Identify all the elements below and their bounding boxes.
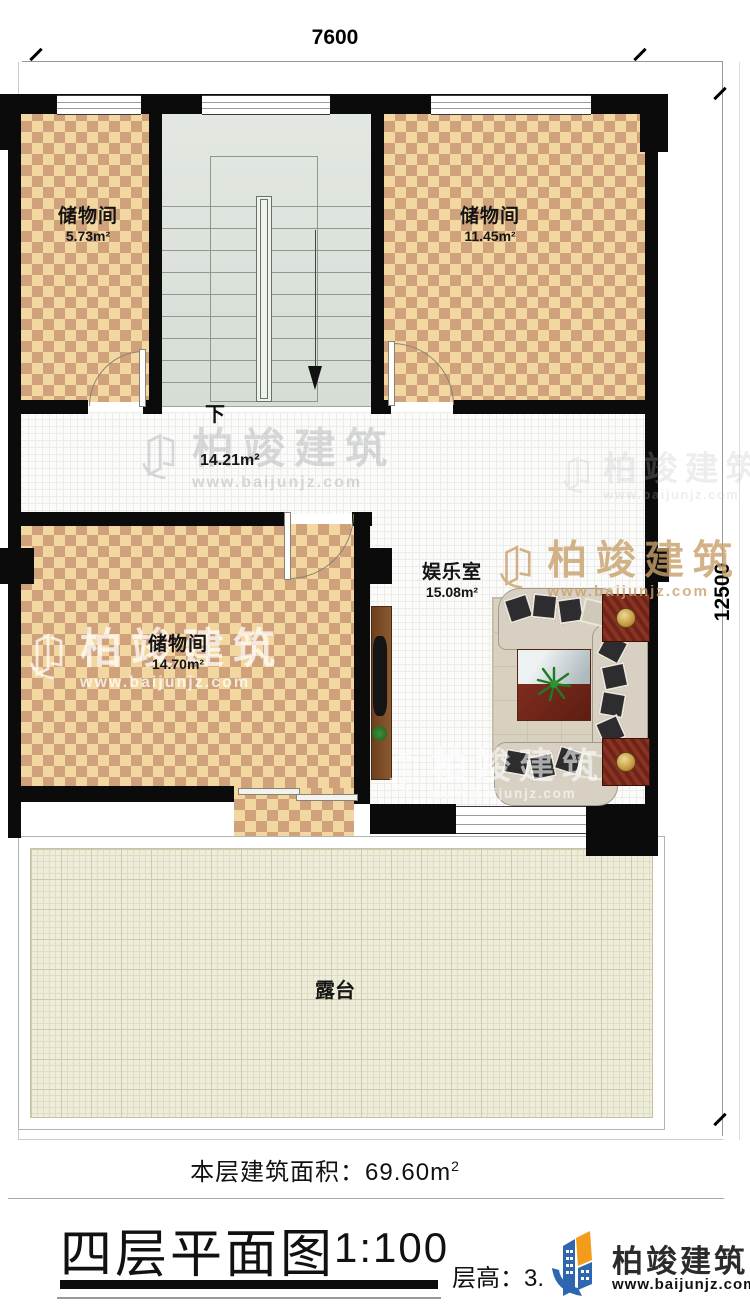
dimension-line-top [22, 61, 722, 62]
room-name: 储物间 [440, 206, 540, 228]
stair-down-label: 下 [205, 398, 225, 427]
floor-area-sup: 2 [451, 1158, 460, 1174]
plan-scale: 1:100 [334, 1224, 449, 1272]
dimension-top-value: 7600 [280, 26, 390, 50]
sliding-door-panel-a [238, 788, 300, 795]
company-logo-url: www.baijunjz.com [612, 1276, 750, 1293]
company-logo-name: 柏竣建筑 [612, 1236, 748, 1281]
room-area: 11.45m² [440, 228, 540, 244]
sliding-door-panel-b [296, 794, 358, 801]
dimension-tick [29, 48, 42, 61]
wall-stair-left [149, 94, 162, 414]
wall-ent-stub [354, 548, 392, 584]
wall-hall-bottom-a [8, 512, 286, 526]
side-table-ornament [616, 608, 636, 628]
hallway-area-label: 14.21m² [200, 452, 300, 470]
room-name: 储物间 [38, 206, 138, 228]
sofa-pillow [531, 593, 558, 620]
room-label-storage-bottom: 储物间 14.70m² [128, 634, 228, 672]
stair-direction-line [315, 230, 316, 370]
title-underline-thick [60, 1280, 438, 1289]
wall-storage-bottom [8, 786, 234, 802]
company-logo-icon [545, 1226, 609, 1302]
dimension-tick [633, 48, 646, 61]
window-entertainment-south [456, 806, 586, 834]
room-area: 15.08m² [402, 584, 502, 600]
terrace-label: 露台 [300, 974, 370, 1003]
frame-right-line [739, 62, 740, 1140]
room-area: 5.73m² [38, 228, 138, 244]
room-name: 娱乐室 [402, 562, 502, 584]
tv [373, 636, 387, 716]
console-plant [372, 726, 387, 741]
window-top-left [57, 95, 141, 115]
room-name: 储物间 [128, 634, 228, 656]
side-table-ornament [616, 752, 636, 772]
dimension-right-value: 12500 [711, 537, 735, 647]
wall-hall-top-a [8, 400, 88, 414]
floor-area-label: 本层建筑面积：69.60m [190, 1159, 451, 1186]
pier-top-left [0, 94, 21, 150]
window-top-stair [202, 95, 330, 115]
footer-divider-line [8, 1198, 724, 1199]
pier-top-right [640, 94, 668, 152]
plan-title: 四层平面图 [60, 1212, 335, 1287]
pier-left-mid [0, 548, 34, 584]
wall-left [8, 94, 21, 838]
floor-area-text: 本层建筑面积：69.60m2 [95, 1152, 555, 1187]
door-leaf-storage-top-right [388, 341, 395, 406]
dimension-tick [713, 1113, 726, 1126]
frame-bottom-line [18, 1139, 723, 1140]
floor-height-label: 层高：3. [452, 1258, 544, 1293]
wall-ent-bottom-b [586, 804, 658, 856]
room-label-storage-top-left: 储物间 5.73m² [38, 206, 138, 244]
sofa-pillow [600, 662, 630, 692]
floor-plan-page: 7600 12500 [0, 0, 750, 1307]
wall-stair-right [371, 94, 384, 414]
room-label-entertainment: 娱乐室 15.08m² [402, 562, 502, 600]
pier-right-mid [645, 548, 669, 582]
side-table-top [602, 594, 650, 642]
sofa-pillow [502, 748, 531, 777]
coffee-table [517, 649, 591, 721]
stair-center-rail [256, 196, 272, 402]
window-top-right [431, 95, 591, 115]
wall-hall-top-d [453, 400, 658, 414]
room-area: 14.70m² [128, 656, 228, 672]
side-table-bottom [602, 738, 650, 786]
dimension-tick [713, 87, 726, 100]
door-leaf-storage-top-left [139, 349, 146, 407]
stair-direction-arrow [308, 366, 322, 390]
wall-ent-bottom-a [370, 804, 456, 834]
door-leaf-storage-bottom [284, 512, 291, 580]
table-plant [534, 664, 574, 704]
room-label-storage-top-right: 储物间 11.45m² [440, 206, 540, 244]
title-underline-thin [57, 1297, 441, 1299]
